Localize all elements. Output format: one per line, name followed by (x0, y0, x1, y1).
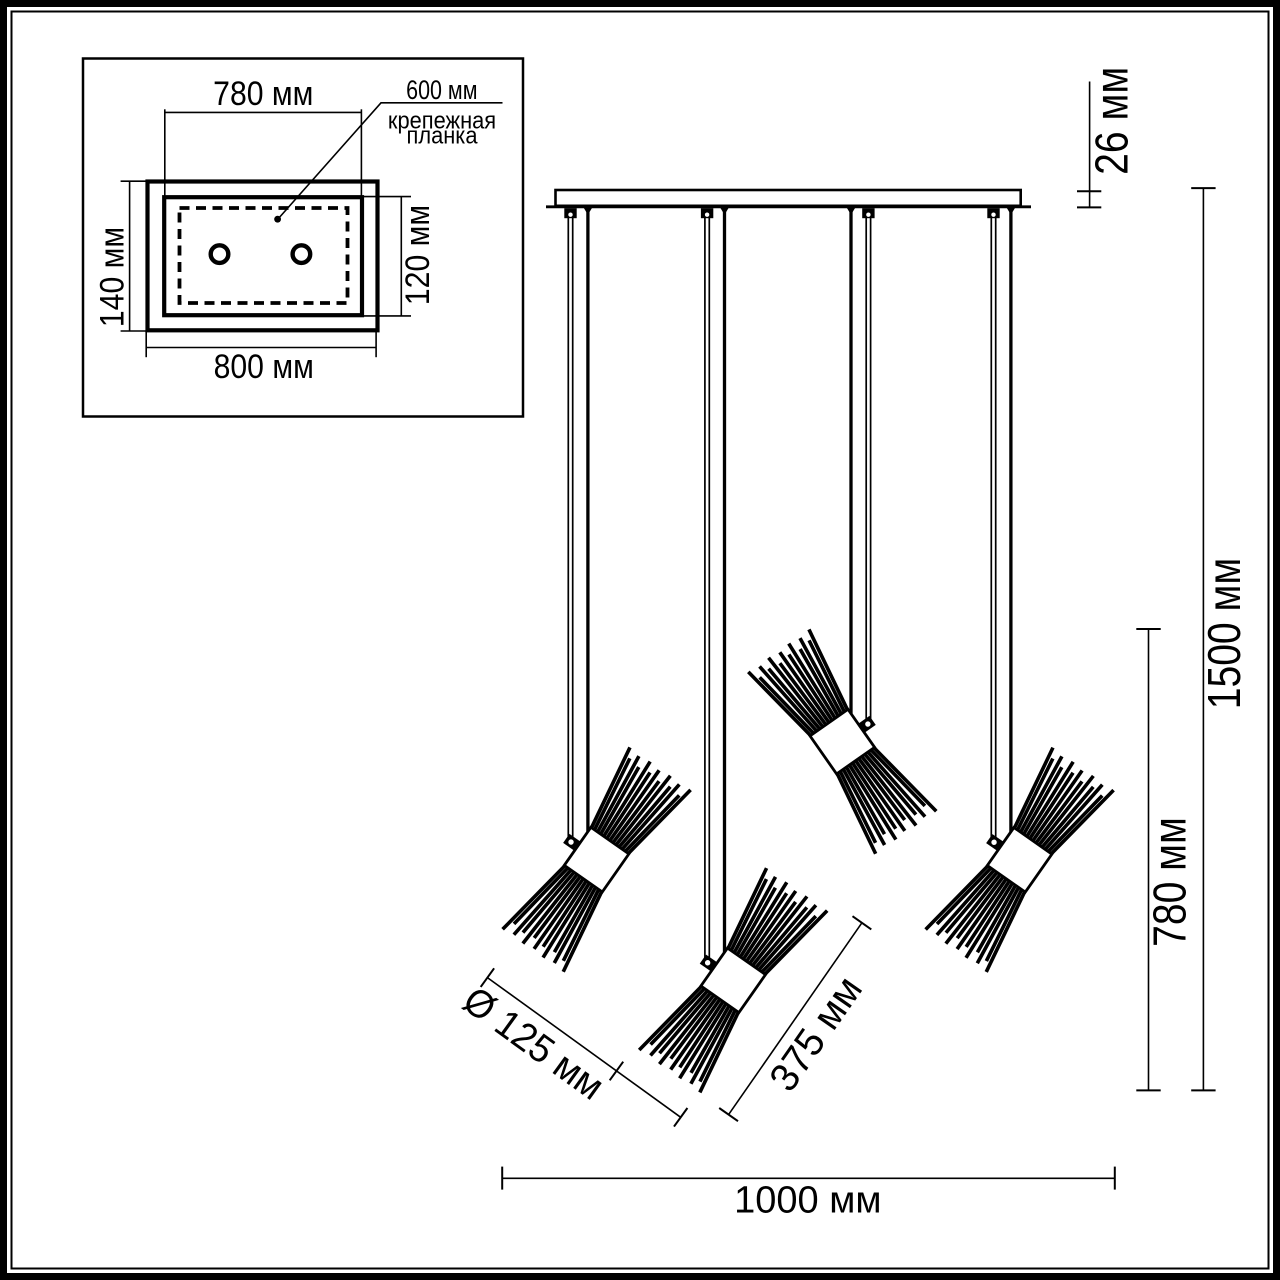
svg-text:1000 мм: 1000 мм (734, 1180, 881, 1222)
svg-text:120 мм: 120 мм (398, 205, 436, 305)
svg-text:780 мм: 780 мм (1145, 817, 1197, 947)
svg-text:140 мм: 140 мм (93, 227, 131, 327)
svg-text:780 мм: 780 мм (213, 74, 313, 112)
svg-text:600 мм: 600 мм (406, 76, 477, 106)
svg-text:800 мм: 800 мм (214, 347, 314, 385)
svg-text:1500 мм: 1500 мм (1199, 558, 1251, 710)
svg-text:26 мм: 26 мм (1086, 67, 1138, 175)
svg-text:планка: планка (407, 122, 478, 149)
